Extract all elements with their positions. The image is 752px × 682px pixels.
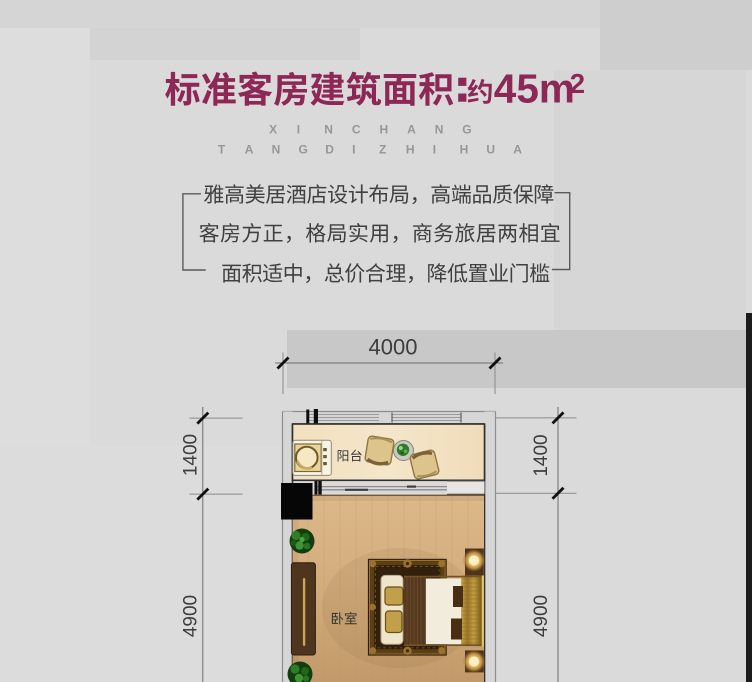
svg-text:2: 2 [570,68,585,99]
svg-text:XINCHANG: XINCHANG [269,123,472,137]
svg-text:45m: 45m [494,65,575,111]
svg-text:1400: 1400 [531,434,552,476]
svg-text:4900: 4900 [531,595,552,637]
svg-text:4900: 4900 [180,595,201,637]
svg-text:4000: 4000 [369,335,418,360]
svg-text:TANGDIZHIHUA: TANGDIZHIHUA [218,143,522,157]
svg-text:1400: 1400 [180,434,201,476]
